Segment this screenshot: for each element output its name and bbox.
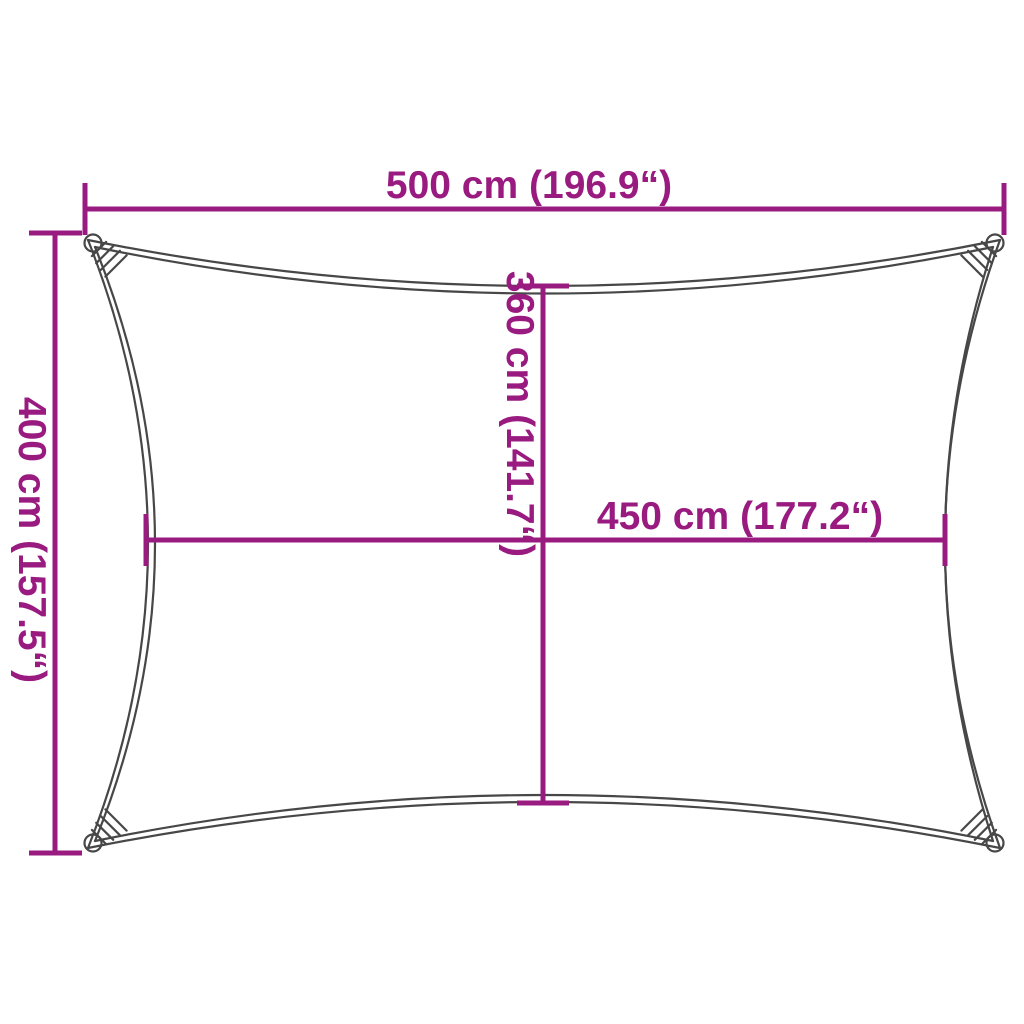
sail-edge-right-inner: [945, 247, 993, 841]
dim-left-label: 400 cm (157.5“): [10, 397, 53, 683]
sail-edge-bottom-outer: [88, 802, 1000, 848]
dim-middle-vertical: 360 cm (141.7“): [498, 271, 569, 803]
dim-middle-horizontal-label: 450 cm (177.2“): [597, 495, 883, 538]
dim-left: 400 cm (157.5“): [10, 233, 82, 853]
dimensions: 500 cm (196.9“) 400 cm (157.5“) 360 cm (…: [10, 164, 1004, 853]
sail-edge-top-outer: [88, 240, 1000, 286]
dim-top-label: 500 cm (196.9“): [386, 164, 672, 207]
shade-sail-dimension-diagram: 500 cm (196.9“) 400 cm (157.5“) 360 cm (…: [0, 0, 1024, 1024]
sail-edge-right-outer: [945, 240, 1000, 848]
dim-top: 500 cm (196.9“): [85, 164, 1004, 235]
diagram-canvas: 500 cm (196.9“) 400 cm (157.5“) 360 cm (…: [0, 0, 1024, 1024]
dim-middle-vertical-label: 360 cm (141.7“): [498, 271, 541, 557]
sail-edge-left-outer: [88, 240, 148, 848]
